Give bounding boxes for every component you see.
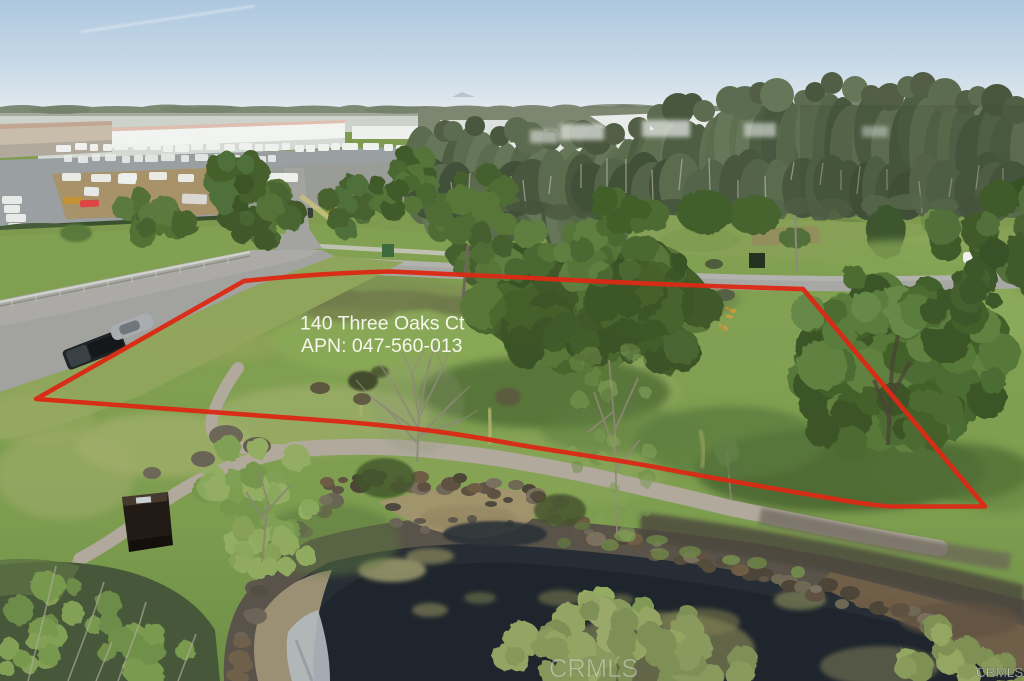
svg-text:140 Three Oaks Ct: 140 Three Oaks Ct	[300, 313, 465, 335]
svg-text:CRMLS: CRMLS	[976, 665, 1023, 680]
svg-text:APN: 047-560-013: APN: 047-560-013	[301, 335, 463, 357]
svg-text:CRMLS: CRMLS	[549, 655, 638, 681]
